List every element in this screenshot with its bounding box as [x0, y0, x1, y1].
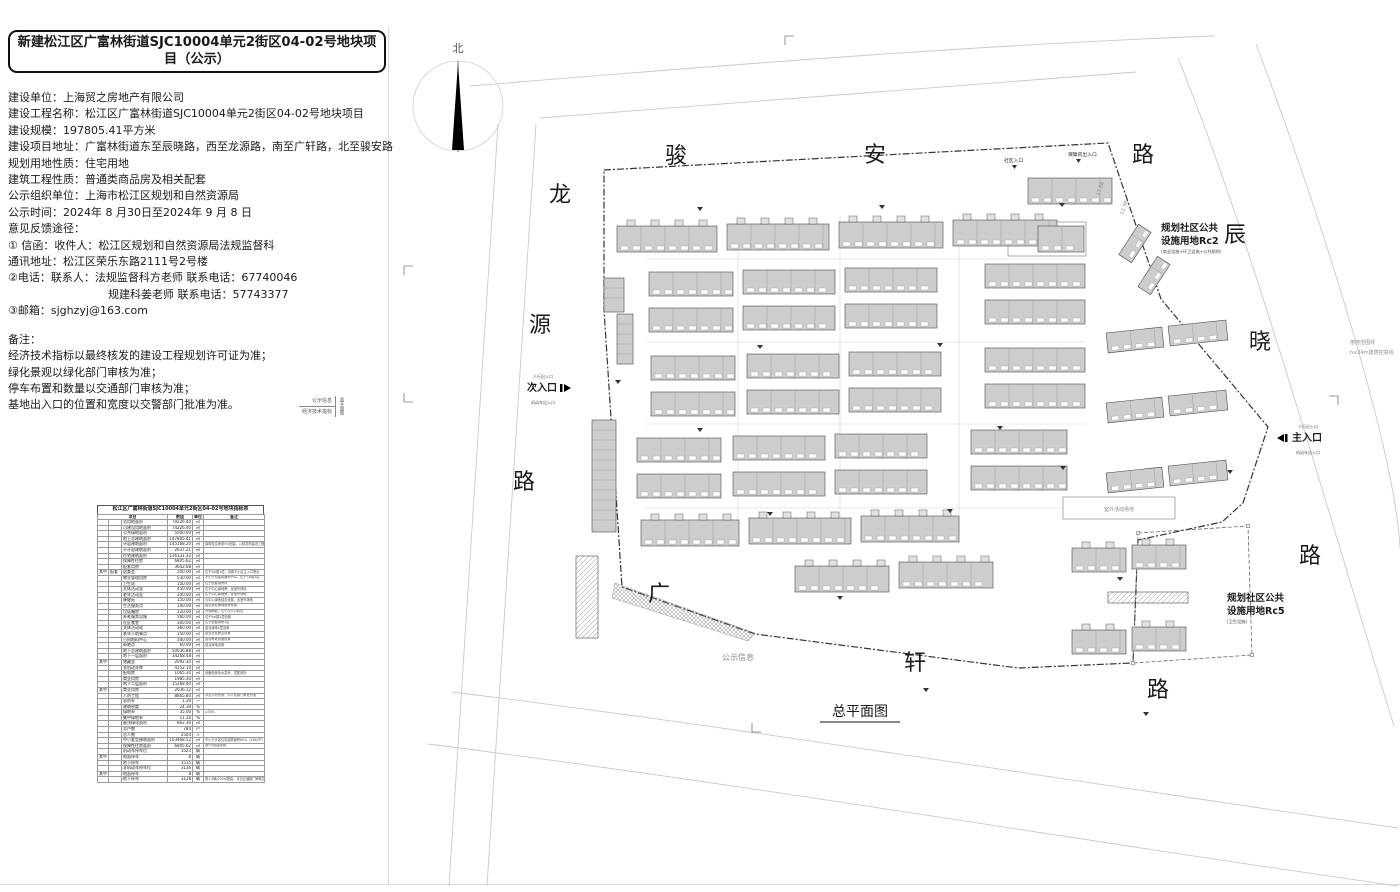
building-block: [649, 308, 733, 332]
building-block: [747, 354, 839, 378]
entrance-label: 次入口: [527, 381, 557, 394]
building-block: [651, 356, 735, 380]
entrance-arrow: [560, 384, 563, 392]
elevation-marker: [1227, 470, 1233, 474]
road-name: 辰: [1224, 223, 1246, 248]
elevation-marker: [697, 207, 703, 211]
elevation-marker: [1143, 712, 1149, 716]
building-block: [641, 514, 739, 546]
building-block: [1106, 397, 1164, 423]
entrance-arrow: [1285, 434, 1288, 442]
elevation-marker: [937, 343, 943, 347]
building-block: [845, 268, 937, 292]
boundary-marker: [1250, 653, 1253, 656]
tiny-note: 用地范围线: [1350, 339, 1375, 346]
building-block: [1132, 539, 1186, 569]
building-block: [835, 434, 927, 458]
entrance-label: 主入口: [1292, 431, 1322, 444]
entrance-marker: [1076, 159, 1081, 163]
tiny-note: 公示信息: [722, 652, 754, 662]
elevation-marker: [767, 512, 773, 516]
building-block: [795, 560, 889, 592]
road-name: 路: [1132, 143, 1154, 168]
road-name: 轩: [904, 651, 926, 676]
road-line: [540, 72, 1136, 118]
road-name: 路: [513, 470, 535, 495]
building-block: [971, 430, 1067, 454]
entrance-marker: [1012, 165, 1017, 169]
building-block: [727, 218, 829, 250]
building-block: [849, 388, 941, 412]
building-block: [861, 510, 959, 542]
elevation-marker: [697, 428, 703, 432]
entrance-arrow: [564, 384, 571, 392]
building-block: [743, 306, 835, 330]
elevation-marker: [757, 345, 763, 349]
building-block: [985, 300, 1085, 324]
building-block: [576, 556, 598, 638]
building-block: [1106, 327, 1164, 353]
boundary-marker: [1136, 531, 1139, 534]
entrance-sub-label: 人行出入口: [1298, 423, 1318, 429]
building-block: [845, 304, 937, 328]
zone-label: 设施用地Rc2: [1161, 235, 1219, 247]
building-block: [749, 512, 851, 544]
elevation-marker: [1117, 577, 1123, 581]
building-block: [1072, 624, 1126, 654]
zone-note: (商业设施+环卫设施+公共厕所): [1161, 248, 1222, 255]
road-line: [470, 36, 1214, 86]
building-block: [1168, 460, 1228, 486]
building-block: [1106, 467, 1164, 493]
drawing-title: 总平面图: [832, 704, 888, 720]
building-block: [839, 216, 943, 248]
elevation-marker: [837, 596, 843, 600]
site-plan: 北骏安路龙源路辰晓路广轩路规划社区公共设施用地Rc2(商业设施+环卫设施+公共厕…: [0, 0, 1400, 892]
road-name: 路: [1299, 544, 1321, 569]
building-block: [733, 472, 825, 496]
building-block: [637, 474, 721, 498]
entrance-arrow: [1277, 434, 1284, 442]
road-name: 路: [1147, 678, 1169, 703]
road-line: [1256, 44, 1400, 548]
building-block: [617, 314, 633, 364]
building-block: [604, 278, 624, 312]
road-line: [452, 692, 1398, 828]
tiny-note: h≤24m建筑控高线: [1350, 349, 1394, 356]
building-block: [971, 466, 1067, 490]
entrance-label: 保障房出入口: [1068, 151, 1097, 158]
entrance-sub-label: 机动车出入口: [1296, 449, 1320, 455]
road-name: 广: [648, 582, 670, 607]
entrance-sub-label: 人行出入口: [533, 373, 553, 379]
zone-label: 设施用地Rc5: [1227, 605, 1285, 617]
entrance-label: 社区入口: [1004, 157, 1023, 164]
building-block: [985, 348, 1085, 372]
elevation-marker: [923, 688, 929, 692]
building-block: [849, 352, 941, 376]
building-block: [1038, 226, 1084, 252]
elevation-marker: [879, 205, 885, 209]
fold-mark: [1329, 396, 1338, 405]
building-block: [985, 384, 1085, 408]
building-block: [899, 556, 993, 588]
north-label: 北: [453, 42, 464, 55]
elevation-marker: [997, 426, 1003, 430]
road-line: [449, 124, 498, 886]
entrance-sub-label: 机动车出入口: [531, 399, 555, 405]
boundary-marker: [1246, 524, 1249, 527]
fold-mark: [404, 393, 413, 402]
landscape-hatch: [612, 583, 755, 641]
road-name: 骏: [665, 144, 687, 169]
building-block: [649, 272, 733, 296]
building-block: [1168, 390, 1228, 416]
road-name: 晓: [1249, 330, 1271, 355]
building-block: [1132, 621, 1186, 651]
boundary-marker: [1131, 661, 1134, 664]
building-block: [733, 436, 825, 460]
building-block: [1168, 320, 1228, 346]
road-line: [487, 124, 536, 886]
zone-note: (卫生设施): [1227, 618, 1247, 625]
building-block: [651, 392, 735, 416]
road-name: 源: [529, 313, 551, 338]
building-block: [835, 470, 927, 494]
road-line: [428, 744, 1398, 886]
elevation-marker: [1059, 203, 1065, 207]
zone-label: 规划社区公共: [1227, 592, 1285, 604]
road-name: 龙: [549, 183, 571, 208]
tiny-note: 室外活动场地: [1104, 506, 1134, 513]
road-name: 安: [864, 143, 886, 168]
zone-label: 规划社区公共: [1161, 222, 1219, 234]
building-block: [617, 220, 717, 252]
fold-mark: [752, 723, 761, 732]
building-block: [592, 420, 616, 532]
building-block: [743, 270, 835, 294]
fold-mark: [404, 266, 413, 275]
building-block: [747, 390, 839, 414]
fold-mark: [785, 36, 794, 45]
building-block: [985, 264, 1085, 288]
building-block: [1108, 592, 1188, 603]
building-block: [1138, 256, 1170, 294]
building-block: [1072, 542, 1126, 572]
elevation-marker: [615, 380, 621, 384]
tiny-note: 12.38: [1119, 200, 1130, 216]
building-block: [637, 438, 721, 462]
